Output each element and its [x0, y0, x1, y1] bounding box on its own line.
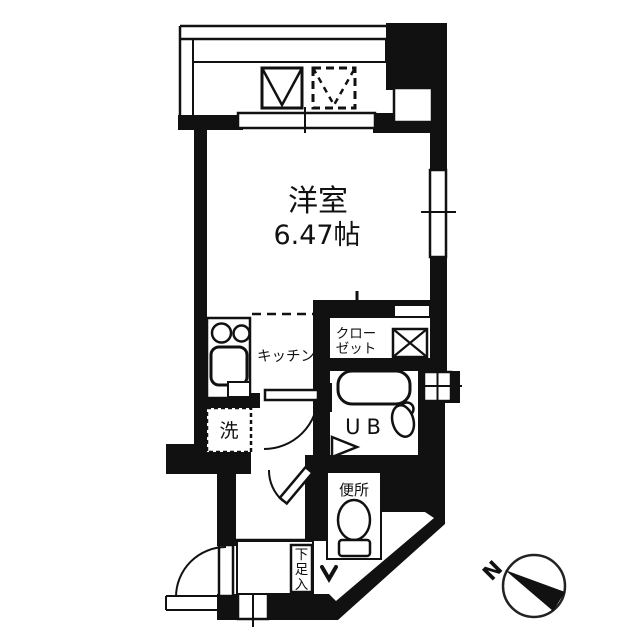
stove-burner-icon [234, 326, 250, 342]
unit-bath [332, 371, 417, 457]
shoe-box-label-char: 入 [295, 577, 309, 593]
balcony-window [238, 113, 375, 128]
toilet-tank-icon [339, 540, 370, 556]
unit-bath-label: UB [345, 415, 387, 439]
shoe-box-label-char: 足 [295, 562, 309, 578]
kitchen-unit [207, 318, 250, 398]
floorplan-drawing: N 洋室 6.47帖 キッチン クロー ゼット 洗 UB 便所 下 足 入 [0, 0, 640, 640]
toilet-label: 便所 [339, 481, 369, 499]
shoe-box-label-char: 下 [295, 547, 309, 563]
hall-door-leaf [265, 390, 318, 400]
ac-units [262, 68, 355, 108]
ac-space-dashed-icon [313, 68, 355, 108]
kitchen-label: キッチン [257, 349, 315, 365]
east-window [430, 170, 446, 257]
wall-toilet-right [378, 455, 422, 514]
washer-label: 洗 [219, 420, 238, 442]
entrance-door-leaf [219, 545, 233, 596]
bathtub [338, 371, 410, 404]
main-room-size: 6.47帖 [273, 220, 360, 251]
stove-burner-icon [212, 324, 231, 343]
toilet-bowl-icon [338, 500, 370, 540]
floorplan-canvas: N 洋室 6.47帖 キッチン クロー ゼット 洗 UB 便所 下 足 入 [0, 0, 640, 640]
ac-outdoor-unit-icon [262, 68, 302, 108]
hall-door-swing-arc [264, 395, 318, 449]
wall-top-left-stub [178, 115, 243, 130]
wall-top-right-block [386, 23, 447, 90]
porch-boundary-lines [166, 596, 218, 610]
closet-label-line2: ゼット [336, 341, 377, 357]
compass: N [478, 555, 565, 617]
main-room-name: 洋室 [288, 184, 348, 219]
wall-slot [394, 305, 430, 317]
kitchen-sink [211, 347, 247, 385]
counter-end-cabinet [228, 382, 250, 397]
meter-box [394, 88, 432, 122]
bath-door-icon [332, 437, 357, 457]
wall-closet-bath-divider [313, 358, 447, 371]
wall-entry-left [217, 472, 236, 546]
closet-label-line1: クロー [336, 326, 377, 342]
